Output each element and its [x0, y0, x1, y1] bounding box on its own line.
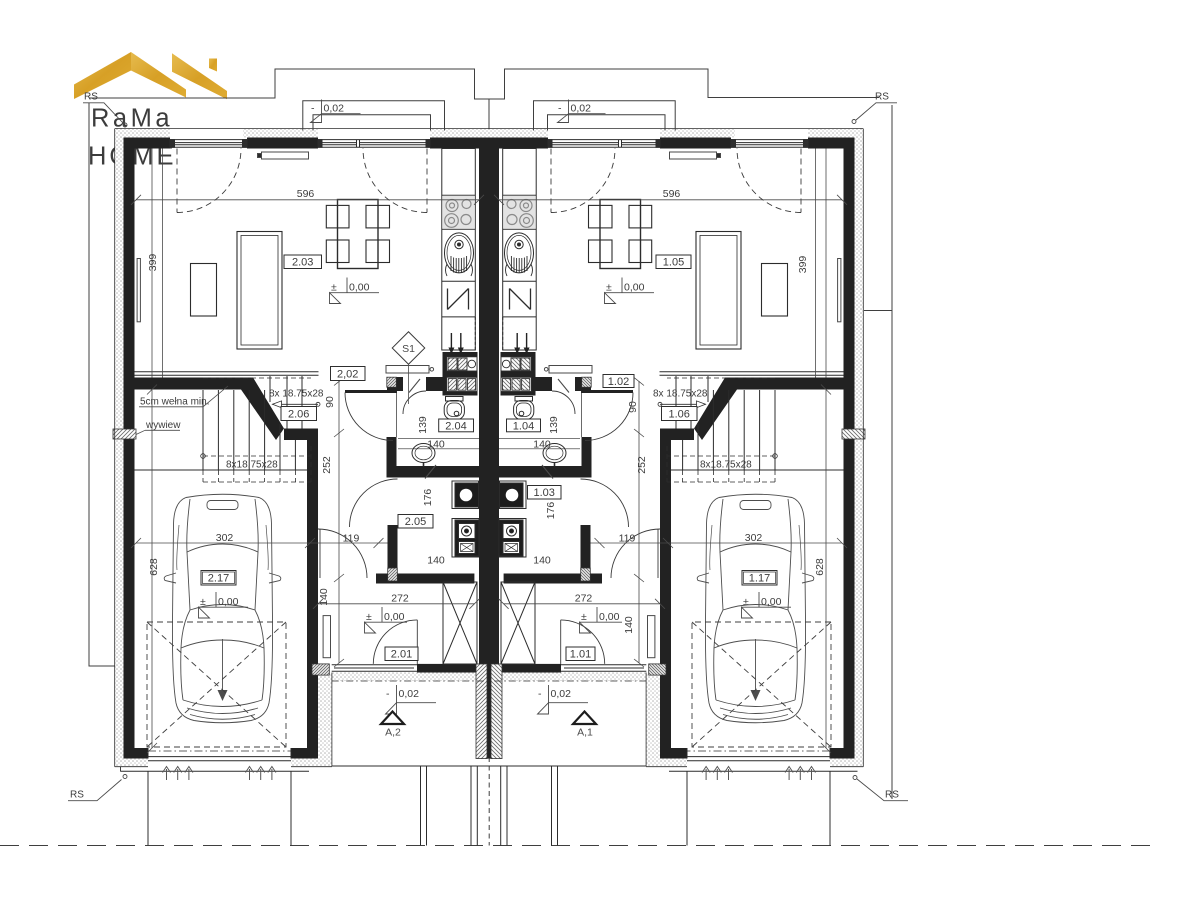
svg-text:302: 302 [216, 532, 234, 544]
svg-text:0,00: 0,00 [624, 282, 645, 294]
svg-text:±: ± [366, 611, 372, 623]
svg-text:2.06: 2.06 [288, 409, 309, 421]
svg-text:-: - [386, 688, 390, 700]
svg-text:139: 139 [417, 416, 429, 434]
svg-text:302: 302 [745, 532, 763, 544]
svg-text:1.17: 1.17 [749, 573, 770, 585]
svg-text:90: 90 [324, 396, 336, 408]
svg-text:140: 140 [427, 439, 445, 451]
svg-text:RS: RS [885, 790, 899, 801]
svg-text:RS: RS [875, 92, 889, 103]
svg-text:0,00: 0,00 [599, 611, 620, 623]
svg-text:596: 596 [663, 188, 681, 200]
svg-text:1.05: 1.05 [663, 257, 684, 269]
svg-text:2,02: 2,02 [337, 369, 358, 381]
svg-text:2.03: 2.03 [292, 257, 313, 269]
svg-text:1.01: 1.01 [570, 649, 591, 661]
svg-text:1.02: 1.02 [608, 376, 629, 388]
svg-text:2.17: 2.17 [208, 573, 229, 585]
svg-text:252: 252 [321, 456, 333, 474]
svg-text:119: 119 [343, 533, 360, 545]
svg-text:±: ± [200, 596, 206, 608]
svg-text:399: 399 [147, 254, 159, 272]
svg-text:A,2: A,2 [385, 727, 401, 739]
svg-text:8x18.75x28: 8x18.75x28 [226, 460, 278, 471]
svg-text:±: ± [581, 611, 587, 623]
svg-text:-: - [558, 103, 562, 115]
svg-text:0,02: 0,02 [551, 688, 572, 700]
svg-text:A,1: A,1 [577, 727, 593, 739]
svg-text:0,02: 0,02 [324, 103, 345, 115]
svg-text:0,02: 0,02 [399, 688, 420, 700]
svg-text:272: 272 [391, 593, 409, 605]
svg-text:-: - [538, 688, 542, 700]
svg-text:8x18.75x28: 8x18.75x28 [700, 460, 752, 471]
svg-text:140: 140 [318, 588, 330, 606]
svg-text:176: 176 [422, 489, 434, 507]
svg-text:5cm wełna min.: 5cm wełna min. [140, 397, 209, 408]
svg-text:140: 140 [533, 439, 551, 451]
svg-text:139: 139 [548, 416, 560, 434]
svg-text:596: 596 [297, 188, 315, 200]
svg-text:±: ± [606, 282, 612, 294]
svg-text:0,00: 0,00 [384, 611, 405, 623]
svg-text:252: 252 [636, 456, 648, 474]
svg-text:0,00: 0,00 [761, 596, 782, 608]
svg-text:90: 90 [627, 401, 639, 413]
svg-text:0,00: 0,00 [349, 282, 370, 294]
svg-text:0,00: 0,00 [218, 596, 239, 608]
svg-text:399: 399 [797, 256, 809, 274]
svg-text:0,02: 0,02 [571, 103, 592, 115]
svg-text:-: - [311, 103, 315, 115]
svg-text:272: 272 [575, 593, 593, 605]
svg-text:628: 628 [814, 558, 826, 576]
svg-text:2.05: 2.05 [405, 516, 426, 528]
svg-text:1.06: 1.06 [668, 409, 689, 421]
svg-text:2.04: 2.04 [445, 420, 466, 432]
svg-text:140: 140 [533, 555, 551, 567]
svg-text:8x 18.75x28: 8x 18.75x28 [653, 389, 708, 400]
svg-text:RS: RS [70, 790, 84, 801]
svg-text:140: 140 [623, 616, 635, 634]
svg-text:1.04: 1.04 [513, 420, 534, 432]
svg-text:S1: S1 [402, 343, 415, 355]
svg-text:1.03: 1.03 [533, 487, 554, 499]
svg-text:140: 140 [427, 555, 445, 567]
svg-text:2.01: 2.01 [391, 649, 412, 661]
svg-text:628: 628 [148, 558, 160, 576]
svg-text:8x 18.75x28: 8x 18.75x28 [269, 389, 324, 400]
svg-text:119: 119 [619, 533, 636, 545]
svg-text:RS: RS [84, 92, 98, 103]
svg-text:±: ± [743, 596, 749, 608]
svg-text:176: 176 [545, 502, 557, 520]
svg-text:wywiew: wywiew [145, 420, 181, 431]
svg-text:±: ± [331, 282, 337, 294]
